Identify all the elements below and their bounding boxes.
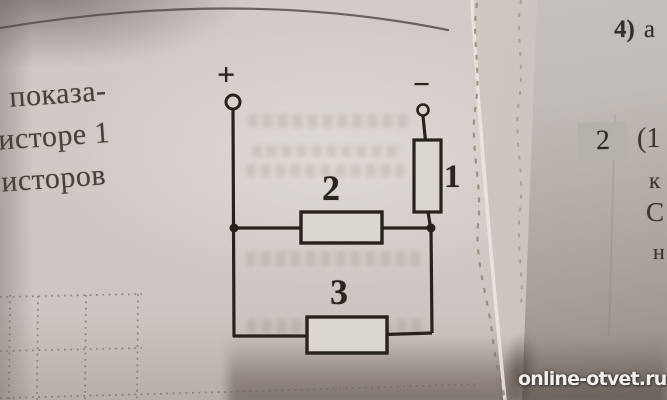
dotted-grid <box>0 294 480 400</box>
wire-right-vertical <box>431 228 432 333</box>
grid-line-v1 <box>9 295 10 400</box>
grid-line-h1 <box>0 294 142 297</box>
resistor-1-label: 1 <box>444 159 461 196</box>
resistor-3-label: 3 <box>330 271 348 313</box>
clipped-text-fragment: н <box>653 239 665 265</box>
torn-edge-right <box>517 0 521 305</box>
problem-text-clipped: показа- исторе 1 исторов <box>0 65 190 204</box>
clipped-text-fragment: к <box>649 168 660 194</box>
answer-option-4-text: а <box>644 16 655 44</box>
grid-line-v4 <box>137 294 138 400</box>
resistor-2-box <box>301 212 382 243</box>
answer-option-4: 4) а <box>614 16 655 44</box>
problem-number-badge: 2 <box>577 121 628 161</box>
torn-page-edges <box>472 0 615 400</box>
problem-2-text-start: (1 <box>637 123 660 155</box>
wire-minus-stub <box>423 116 426 141</box>
grid-line-h3 <box>0 384 480 398</box>
textbook-photo: показа- исторе 1 исторов + − 1 2 3 4) а … <box>0 0 667 400</box>
minus-terminal-label: − <box>413 68 430 102</box>
resistor-2-label: 2 <box>322 167 340 209</box>
grid-line-v3 <box>85 295 86 400</box>
problem-number: 2 <box>595 125 610 157</box>
plus-terminal-circle <box>226 95 240 109</box>
watermark-text: online-otvet.ru <box>518 368 667 390</box>
resistor-3-box <box>307 317 387 353</box>
clipped-text-fragment: С <box>646 197 664 228</box>
minus-terminal-circle <box>418 105 429 116</box>
resistor-1-box <box>414 140 441 212</box>
top-rule-line <box>0 8 448 30</box>
plus-terminal-label: + <box>217 56 235 93</box>
junction-dot-right <box>427 224 436 233</box>
grid-line-h2 <box>0 348 142 351</box>
junction-dot-left <box>230 224 239 233</box>
answer-option-4-number: 4) <box>614 16 635 44</box>
wire-bottom-right <box>385 333 432 335</box>
circuit-diagram <box>226 95 441 353</box>
wire-plus-vertical <box>233 110 234 337</box>
left-page-edge-highlight <box>472 0 505 400</box>
grid-line-v2 <box>37 296 38 400</box>
